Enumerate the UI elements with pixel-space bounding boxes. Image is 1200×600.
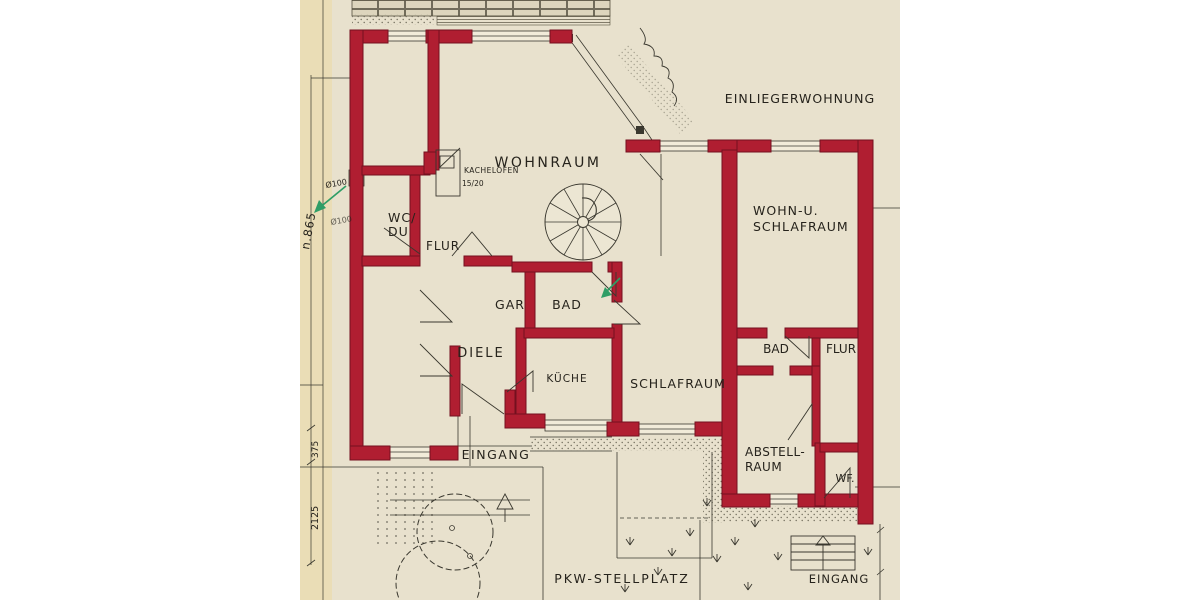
room-label-diele: DIELE [457, 346, 505, 361]
wall-segment [798, 494, 858, 507]
label-pkw-stellplatz: PKW-STELLPLATZ [554, 571, 690, 586]
room-label-abstell-1: ABSTELL- [745, 445, 805, 459]
wall-segment [550, 30, 572, 43]
room-label-schlafraum-einlieger: SCHLAFRAUM [753, 219, 849, 234]
wall-segment [525, 272, 535, 330]
wall-segment [524, 328, 614, 338]
wall-segment [362, 256, 420, 266]
room-label-schlafraum-main: SCHLAFRAUM [630, 376, 726, 391]
wall-segment [607, 422, 639, 436]
wall-segment [737, 366, 773, 375]
room-label-flur-einlieger: FLUR [826, 342, 856, 356]
wall-segment [737, 140, 771, 152]
wall-segment [350, 446, 390, 460]
room-label-du: DU [388, 224, 409, 239]
room-label-wohn-u: WOHN-U. [753, 203, 819, 218]
wall-segment [820, 443, 858, 452]
wall-segment [505, 414, 545, 428]
dimension-2125: 2125 [310, 506, 321, 530]
wall-segment [512, 262, 592, 272]
dimension-375: 375 [311, 441, 321, 458]
window [545, 420, 612, 431]
room-label-bad-main: BAD [552, 297, 582, 312]
wall-segment [350, 30, 363, 460]
wall-segment [858, 140, 873, 524]
spiral-staircase [545, 184, 621, 260]
room-label-bad-einlieger: BAD [763, 342, 789, 356]
room-label-abstell-2: RAUM [745, 460, 782, 474]
stove-flue [424, 152, 436, 174]
wall-segment [428, 30, 439, 170]
wall-segment [430, 446, 458, 460]
room-label-flur-main: FLUR [426, 239, 460, 253]
label-eingang-main: EINGANG [462, 447, 531, 462]
room-label-wf: WF. [836, 472, 855, 485]
wall-segment [722, 150, 737, 506]
label-eingang-einlieger: EINGANG [809, 572, 870, 586]
wall-segment [737, 328, 767, 338]
wall-segment [464, 256, 512, 266]
annotation-kachelofen: KACHELOFEN [464, 166, 519, 175]
annotation-kachelofen-size: 15/20 [462, 179, 484, 188]
masonry-garden-wall [352, 0, 610, 25]
room-label-gar: GAR [495, 297, 525, 312]
wall-segment [612, 324, 622, 430]
floor-plan: WOHNRAUM KACHELOFEN 15/20 WC/ DU FLUR EI… [0, 0, 1200, 600]
wall-segment [820, 140, 858, 152]
wall-segment [695, 422, 722, 436]
wall-segment [785, 328, 858, 338]
wall-segment [722, 494, 770, 507]
wall-segment [362, 166, 430, 175]
wall-segment [626, 140, 660, 152]
area-label-einliegerwohnung: EINLIEGERWOHNUNG [725, 91, 875, 106]
window [390, 447, 430, 458]
wall-segment [516, 328, 526, 422]
room-label-kueche: KÜCHE [546, 372, 587, 385]
wall-segment [812, 366, 820, 446]
room-label-wc: WC/ [388, 210, 416, 225]
